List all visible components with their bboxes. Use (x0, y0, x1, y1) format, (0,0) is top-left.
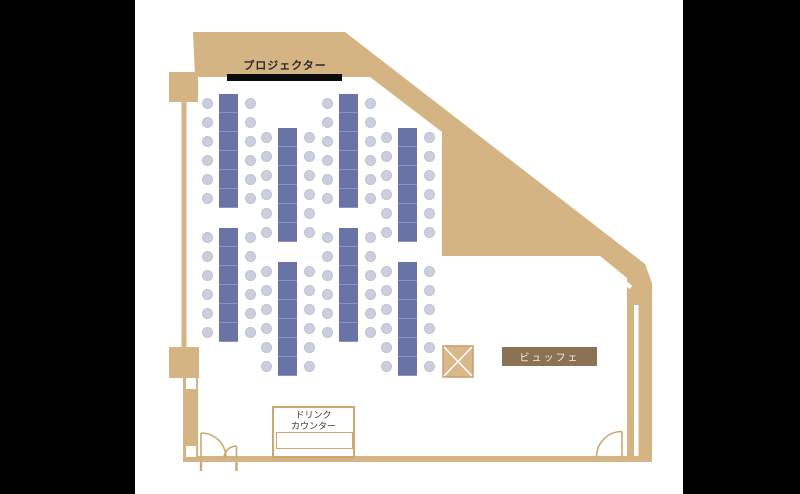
chair (202, 270, 213, 281)
chair (381, 189, 392, 200)
chair (245, 270, 256, 281)
chair (381, 361, 392, 372)
chair (365, 117, 376, 128)
wall-left-top-block (169, 72, 198, 102)
chair (322, 251, 333, 262)
chair (202, 193, 213, 204)
table (278, 128, 297, 242)
table (398, 128, 417, 242)
chair (424, 189, 435, 200)
chair (322, 117, 333, 128)
chair (304, 342, 315, 353)
chair (261, 151, 272, 162)
chair (365, 193, 376, 204)
drink-counter-shelf (276, 432, 353, 449)
chair (322, 193, 333, 204)
chair (245, 117, 256, 128)
chair (245, 289, 256, 300)
chair (424, 323, 435, 334)
chair (381, 170, 392, 181)
buffet-sign: ビュッフェ (502, 347, 597, 366)
chair (245, 155, 256, 166)
chair (322, 270, 333, 281)
chair (245, 174, 256, 185)
chair (424, 266, 435, 277)
chair (381, 208, 392, 219)
chair (202, 155, 213, 166)
chair (261, 304, 272, 315)
chair (304, 304, 315, 315)
chair (424, 227, 435, 238)
chair (304, 132, 315, 143)
chair (202, 289, 213, 300)
chair (304, 266, 315, 277)
drink-counter-label: ドリンク カウンター (274, 410, 353, 432)
table (398, 262, 417, 376)
chair (304, 189, 315, 200)
wall-left-thin (182, 101, 187, 348)
table (339, 228, 358, 342)
chair (245, 98, 256, 109)
chair (381, 285, 392, 296)
chair (261, 189, 272, 200)
wall-main (186, 32, 652, 462)
chair (381, 227, 392, 238)
chair (424, 170, 435, 181)
chair (304, 208, 315, 219)
chair (245, 308, 256, 319)
chair (424, 285, 435, 296)
drink-counter: ドリンク カウンター (272, 406, 355, 458)
chair (202, 327, 213, 338)
chair (424, 361, 435, 372)
chair (381, 151, 392, 162)
chair (365, 98, 376, 109)
wall-left-notch-bottom (186, 446, 196, 457)
chair (381, 266, 392, 277)
chair (304, 285, 315, 296)
chair (322, 136, 333, 147)
chair (365, 136, 376, 147)
single-door-right (597, 432, 623, 458)
chair (304, 151, 315, 162)
chair (202, 136, 213, 147)
chair (304, 361, 315, 372)
chair (202, 251, 213, 262)
chair (424, 132, 435, 143)
double-door-left (201, 433, 237, 471)
chair (365, 251, 376, 262)
chair (381, 323, 392, 334)
chair (381, 132, 392, 143)
floorplan-canvas: プロジェクター ビュッフェ ドリンク カウンター (0, 0, 800, 494)
table (339, 94, 358, 208)
chair (261, 208, 272, 219)
table (278, 262, 297, 376)
chair (381, 304, 392, 315)
chair (245, 327, 256, 338)
chair (202, 117, 213, 128)
chair (424, 208, 435, 219)
service-stand-box (443, 346, 473, 377)
chair (365, 308, 376, 319)
wall-left-notch-top (186, 378, 196, 389)
chair (261, 132, 272, 143)
chair (202, 98, 213, 109)
projector-label: プロジェクター (235, 57, 335, 73)
chair (202, 308, 213, 319)
chair (365, 174, 376, 185)
wall-left-bottom-block (169, 347, 199, 378)
table (219, 94, 238, 208)
chair (322, 174, 333, 185)
chair (245, 251, 256, 262)
chair (322, 232, 333, 243)
chair (261, 361, 272, 372)
chair (261, 170, 272, 181)
chair (365, 270, 376, 281)
chair (202, 174, 213, 185)
chair (261, 227, 272, 238)
chair (365, 155, 376, 166)
chair (322, 308, 333, 319)
chair (322, 155, 333, 166)
chair (261, 342, 272, 353)
table (219, 228, 238, 342)
chair (322, 327, 333, 338)
chair (365, 232, 376, 243)
chair (365, 289, 376, 300)
chair (261, 285, 272, 296)
chair (245, 193, 256, 204)
chair (261, 323, 272, 334)
chair (245, 136, 256, 147)
chair (424, 151, 435, 162)
chair (261, 266, 272, 277)
chair (304, 170, 315, 181)
chair (322, 289, 333, 300)
chair (304, 323, 315, 334)
right-wall-gap (634, 305, 639, 456)
chair (365, 327, 376, 338)
projector-screen-bar (227, 74, 342, 81)
chair (381, 342, 392, 353)
chair (424, 304, 435, 315)
chair (304, 227, 315, 238)
chair (424, 342, 435, 353)
walls-svg (0, 0, 800, 494)
chair (202, 232, 213, 243)
chair (322, 98, 333, 109)
chair (245, 232, 256, 243)
